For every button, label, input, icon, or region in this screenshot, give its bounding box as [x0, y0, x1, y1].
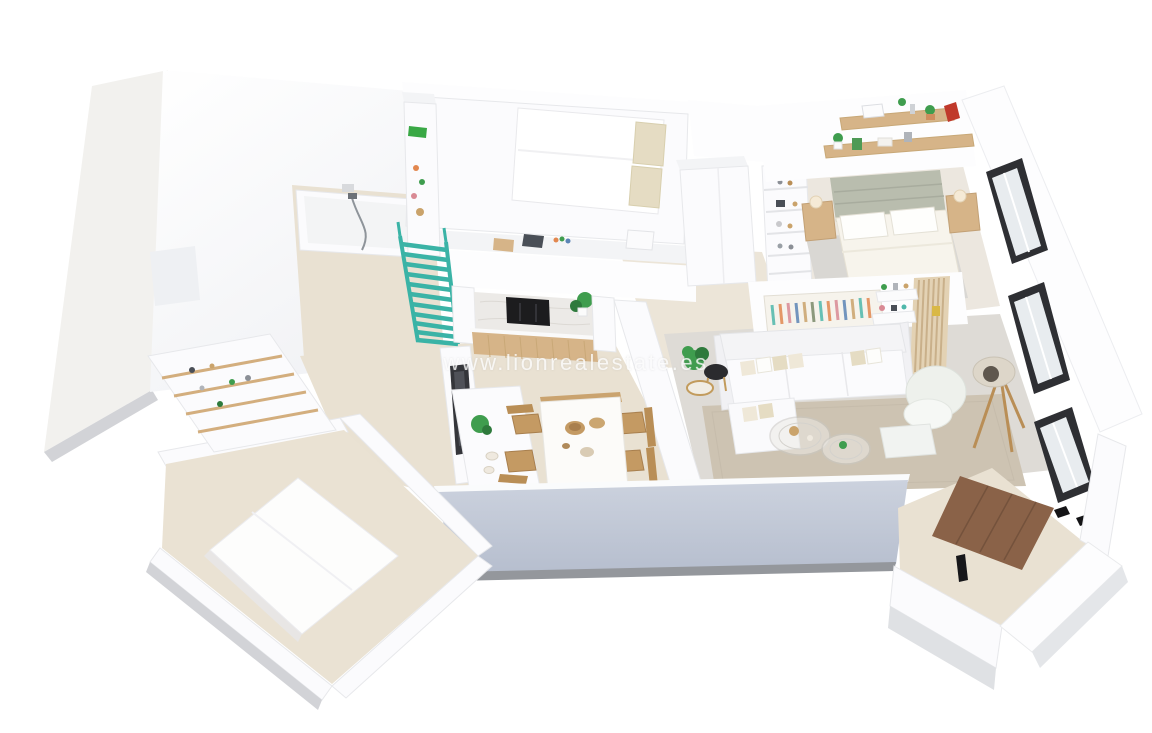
bedside-lamp-icon: [810, 196, 822, 208]
bed-pillow: [840, 212, 888, 240]
ottoman: [880, 424, 936, 458]
desk-pencil: [566, 239, 571, 244]
shelf-item: [793, 202, 798, 207]
table-decor: [789, 426, 799, 436]
shelf-item: [789, 245, 794, 250]
south-wall-face: [438, 480, 908, 574]
kitchen-column: [592, 296, 616, 352]
table-bowl: [589, 418, 605, 429]
shower-head-icon: [348, 193, 357, 199]
shelf-item: [891, 305, 897, 311]
wardrobe: [680, 166, 756, 286]
floor-plan-scene: [0, 0, 1152, 733]
tv-recess: [506, 297, 550, 326]
shower-plate: [342, 184, 354, 192]
shelf-item: [788, 181, 793, 186]
shelf-vase: [910, 104, 915, 114]
wardrobe-item: [210, 364, 215, 369]
shelf-frame: [904, 132, 912, 142]
south-wall: [434, 474, 910, 581]
table-bowl: [569, 423, 581, 431]
cabinet-item: [419, 179, 425, 185]
wardrobe-item: [217, 401, 223, 407]
plant-pot: [834, 142, 842, 149]
shelf-item: [902, 305, 907, 310]
shelf-item: [904, 284, 909, 289]
laptop-icon: [862, 104, 884, 118]
counter-bowl: [484, 467, 494, 474]
table-decor: [807, 435, 813, 441]
desk-pencil: [560, 237, 565, 242]
counter-plant-icon: [482, 425, 492, 435]
table-bowl: [580, 447, 594, 457]
kitchen: [452, 286, 616, 362]
dining-table: [540, 397, 628, 492]
sconce-light-icon: [1054, 506, 1070, 518]
desk-box: [493, 238, 514, 252]
hall-top-wall: [688, 100, 764, 162]
counter-bowl: [486, 452, 498, 460]
cabinet-item: [413, 165, 419, 171]
shelf-plant-icon: [881, 284, 887, 290]
base-slab: [44, 70, 168, 462]
exit-sign-icon: [408, 126, 427, 138]
cabinet-item: [416, 208, 424, 216]
desk-pencil: [554, 238, 559, 243]
green-books: [852, 138, 862, 150]
desk-book: [522, 234, 544, 248]
table-bowl: [562, 443, 570, 449]
shelf-item: [879, 305, 885, 311]
shelf-item: [878, 138, 892, 146]
shelf-item: [788, 224, 793, 229]
table-decor: [839, 441, 847, 449]
bed-pillow: [890, 207, 938, 235]
shelf-plant-icon: [898, 98, 906, 106]
wardrobe-item: [245, 375, 251, 381]
wardrobe-item: [200, 386, 205, 391]
wall-ledge: [150, 246, 200, 306]
bedside-lamp-icon: [954, 190, 966, 202]
shelf-item: [776, 200, 785, 207]
plant-pot: [578, 308, 587, 316]
wardrobe-item: [229, 379, 235, 385]
floor-plan-render: www.lionrealestate.es: [0, 0, 1152, 733]
loft-pillow: [629, 166, 662, 208]
loft-pillow: [633, 122, 666, 166]
wall-shelf: [872, 311, 916, 325]
shelf-item: [778, 244, 783, 249]
shelf-plant-icon: [925, 105, 935, 115]
cabinet-item: [411, 193, 417, 199]
desk-organizer: [626, 230, 654, 250]
mustard-vase: [932, 306, 940, 316]
plant-pot: [926, 114, 935, 120]
wardrobe-item: [189, 367, 195, 373]
shelf-item: [893, 283, 898, 290]
shelf-item: [776, 221, 782, 227]
entry-east-wall: [1080, 434, 1126, 556]
